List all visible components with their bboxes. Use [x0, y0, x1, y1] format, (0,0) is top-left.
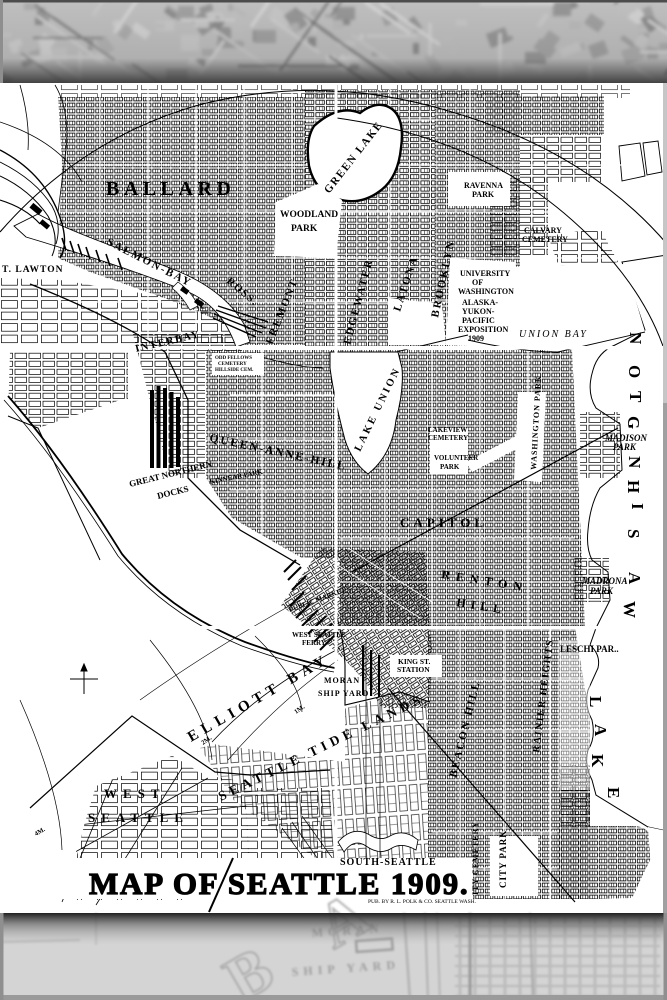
svg-text:MORAN: MORAN [324, 676, 360, 685]
svg-text:WEST: WEST [104, 786, 166, 801]
svg-text:YUKON-: YUKON- [462, 307, 495, 316]
svg-text:CEMETERY: CEMETERY [218, 362, 247, 367]
svg-text:CITY PARK: CITY PARK [498, 830, 508, 888]
svg-text:CALVARY: CALVARY [524, 226, 562, 235]
svg-text:MADRONA: MADRONA [581, 576, 628, 586]
svg-text:T. LAWTON: T. LAWTON [2, 265, 63, 275]
svg-text:CEMETERY: CEMETERY [428, 434, 468, 442]
svg-text:PARK: PARK [291, 224, 318, 234]
svg-text:RAVENNA: RAVENNA [464, 181, 503, 190]
svg-text:PARK: PARK [590, 586, 614, 596]
svg-text:G: G [624, 416, 643, 429]
svg-text:O: O [625, 365, 644, 378]
svg-text:1909: 1909 [468, 334, 484, 343]
svg-text:WOODLAND: WOODLAND [280, 210, 338, 220]
svg-text:FERRY: FERRY [302, 639, 326, 647]
svg-text:LAKEVIEW: LAKEVIEW [428, 426, 467, 434]
svg-text:STATION: STATION [397, 665, 430, 674]
svg-text:L: L [586, 696, 605, 707]
svg-text:ALASKA-: ALASKA- [462, 298, 498, 307]
svg-text:UNIVERSITY: UNIVERSITY [460, 269, 510, 278]
svg-text:WASHINGTON: WASHINGTON [458, 287, 514, 296]
svg-text:PARK: PARK [440, 463, 460, 471]
svg-text:MAP OF SEATTLE 1909.: MAP OF SEATTLE 1909. [89, 866, 469, 901]
svg-text:K: K [588, 754, 607, 768]
svg-text:PARK: PARK [472, 190, 495, 199]
svg-text:A: A [591, 724, 610, 737]
svg-text:E: E [604, 787, 623, 798]
svg-text:LESCHI PAR..: LESCHI PAR.. [560, 644, 619, 654]
svg-text:H: H [624, 480, 643, 493]
svg-text:CAPITOL: CAPITOL [400, 515, 487, 530]
svg-text:N: N [625, 456, 644, 469]
svg-text:ITY CEMETERY: ITY CEMETERY [471, 821, 480, 895]
svg-text:BALLARD: BALLARD [106, 178, 235, 200]
svg-text:T: T [626, 391, 645, 403]
svg-text:I: I [628, 503, 647, 510]
svg-text:ODD FELLOWS: ODD FELLOWS [215, 356, 252, 361]
svg-text:N: N [626, 332, 645, 345]
svg-text:PACIFIC: PACIFIC [462, 316, 495, 325]
svg-text:UNION BAY: UNION BAY [519, 329, 588, 340]
svg-text:SHIP YARD: SHIP YARD [318, 689, 369, 698]
svg-text:A: A [625, 572, 644, 585]
svg-text:WEST SEATTLE: WEST SEATTLE [292, 631, 346, 639]
svg-text:EXPOSITION: EXPOSITION [458, 325, 508, 334]
svg-text:S: S [624, 529, 643, 538]
svg-text:HILLSIDE CEM.: HILLSIDE CEM. [215, 368, 254, 373]
svg-text:SEATTLE: SEATTLE [88, 810, 189, 825]
svg-text:CEMETERY: CEMETERY [522, 235, 568, 244]
svg-text:PARK: PARK [613, 442, 637, 452]
svg-text:W: W [620, 601, 639, 618]
svg-text:OF: OF [472, 278, 483, 287]
svg-text:VOLUNTEER: VOLUNTEER [434, 454, 479, 462]
